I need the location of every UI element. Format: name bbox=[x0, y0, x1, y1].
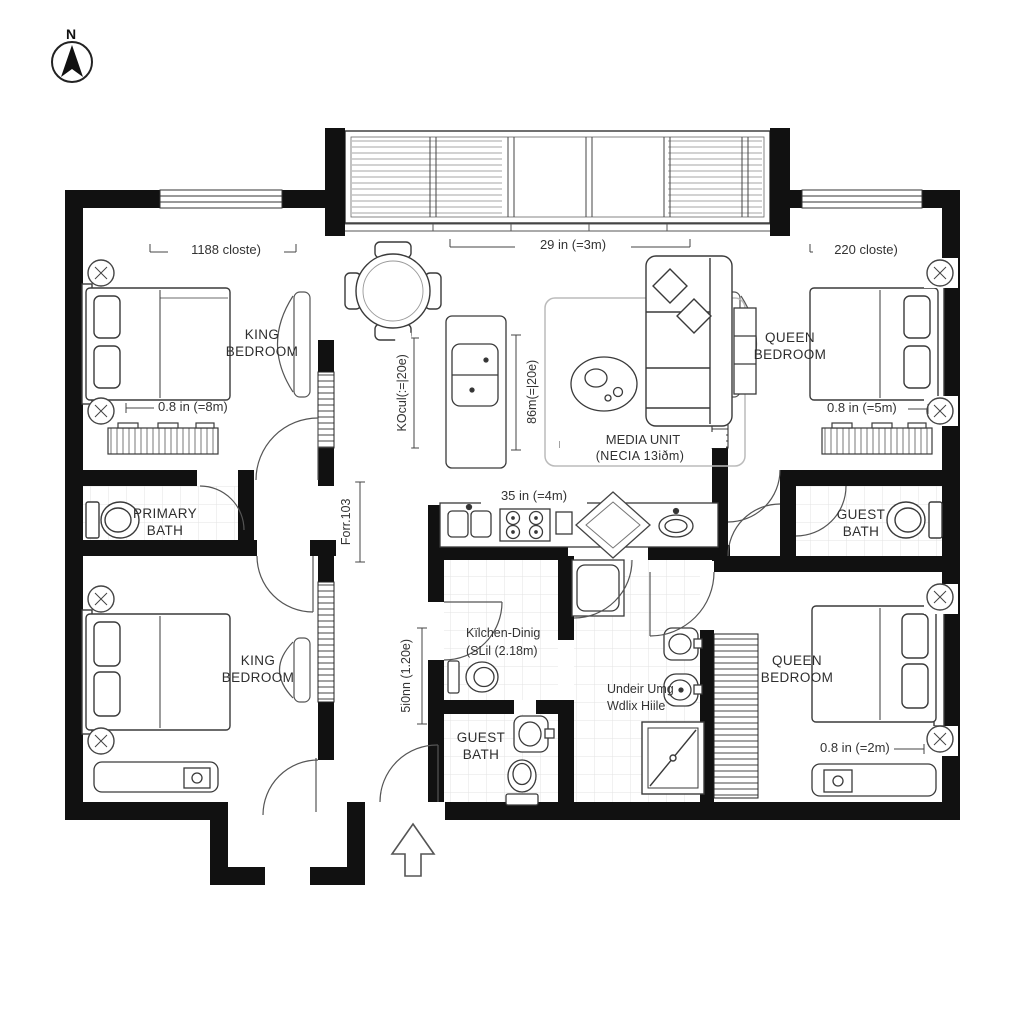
kitchen-island bbox=[446, 316, 506, 468]
utility-label: Undeir Umg bbox=[607, 682, 674, 698]
dim-hall-lower: 5i0nn (1.20e) bbox=[399, 621, 415, 731]
kitchen-dining-sublabel: (SLil (2.18m) bbox=[466, 644, 538, 660]
utility-sublabel: Wdlix Hiile bbox=[607, 699, 665, 715]
floor-plan-page: N 1188 closte) 29 in (=3m) 220 closte) K… bbox=[0, 0, 1024, 1024]
washer bbox=[572, 560, 624, 616]
king-bed-top bbox=[82, 284, 230, 404]
compass-north-label: N bbox=[61, 26, 81, 44]
room-label-queen-bedroom-bottom: QUEEN BEDROOM bbox=[752, 653, 842, 687]
dim-queen-bottom-bed: 0.8 in (=2m) bbox=[820, 740, 890, 756]
toilet-guest-bottom bbox=[506, 760, 538, 805]
dim-closet-right: 220 closte) bbox=[813, 242, 919, 258]
dim-overall-top: 29 in (=3m) bbox=[515, 237, 631, 253]
cooktop bbox=[500, 509, 550, 541]
dim-hall-left: Forr.103 bbox=[339, 477, 355, 567]
bench-bottom-right bbox=[812, 764, 936, 796]
dim-island-left: KOcul(:=|20e) bbox=[395, 333, 411, 453]
dim-king-top-bed: 0.8 in (=8m) bbox=[158, 399, 228, 415]
toilet-hall bbox=[448, 661, 498, 693]
toilet-guest-right bbox=[887, 502, 942, 538]
media-unit-sublabel: (NECIA 13iðm) bbox=[560, 449, 720, 465]
counter-diamond bbox=[576, 492, 650, 558]
dim-closet-left: 1188 closte) bbox=[168, 242, 284, 258]
coffee-table bbox=[571, 357, 637, 411]
kitchen-dining-label: Kïlchen-Dinig bbox=[466, 626, 540, 642]
dim-queen-top-bed: 0.8 in (=5m) bbox=[827, 400, 897, 416]
room-label-primary-bath: PRIMARY BATH bbox=[120, 506, 210, 540]
room-label-queen-bedroom-top: QUEEN BEDROOM bbox=[745, 330, 835, 364]
dim-island-right: 86m(=|20e) bbox=[525, 332, 541, 452]
window bbox=[160, 190, 922, 208]
shower bbox=[642, 722, 704, 794]
sofa bbox=[646, 256, 732, 426]
dining-table bbox=[345, 242, 441, 340]
sink-guest-bottom bbox=[514, 716, 554, 752]
dim-kitchen-run: 35 in (=4m) bbox=[481, 488, 587, 504]
media-unit-label: MEDIA UNIT bbox=[560, 432, 726, 448]
north-compass-icon bbox=[52, 42, 92, 82]
bench-bottom-left bbox=[94, 762, 218, 792]
glazed-wall bbox=[345, 131, 770, 231]
room-label-guest-bath-bottom: GUEST BATH bbox=[451, 730, 511, 764]
king-bed-bottom bbox=[82, 610, 230, 734]
dresser-top-left bbox=[108, 423, 218, 454]
entry-arrow bbox=[392, 824, 434, 876]
dresser-top-right bbox=[822, 423, 932, 454]
room-label-guest-bath-right: GUEST BATH bbox=[831, 507, 891, 541]
room-label-king-bedroom-top: KING BEDROOM bbox=[217, 327, 307, 361]
room-label-king-bedroom-bottom: KING BEDROOM bbox=[213, 653, 303, 687]
